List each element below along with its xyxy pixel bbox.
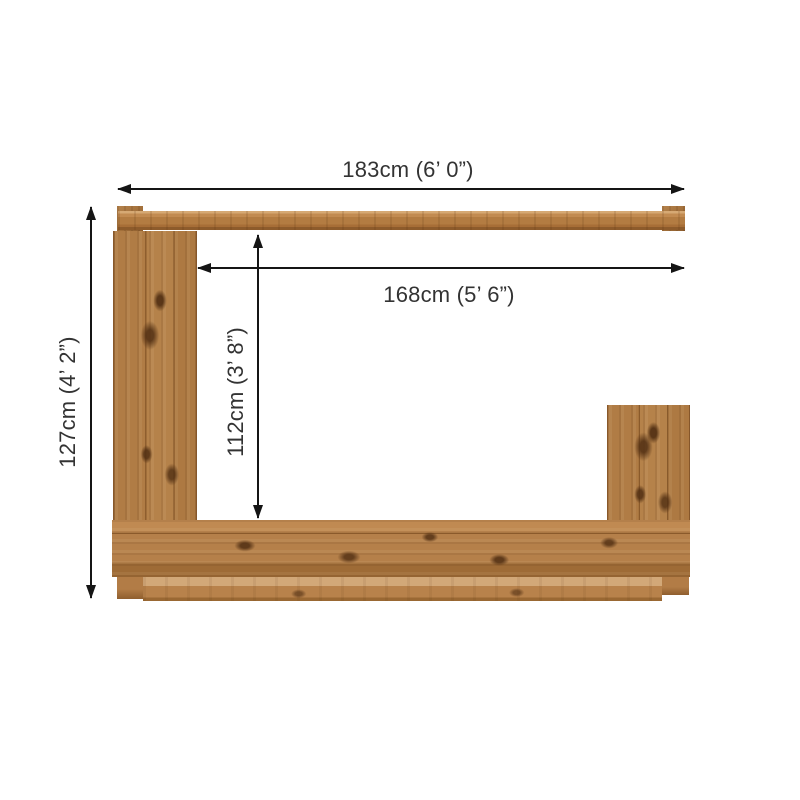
inner-depth-label: 112cm (3’ 8”) [223,327,249,457]
total-depth-label: 127cm (4’ 2”) [55,336,81,467]
arrowhead-right-icon [671,263,685,273]
inner-width-arrow [198,267,684,269]
arrowhead-up-icon [253,234,263,248]
arrowhead-down-icon [86,585,96,599]
bottom-base [143,577,662,601]
arrowhead-right-icon [671,184,685,194]
arrowhead-left-icon [117,184,131,194]
total-width-arrow [118,188,684,190]
inner-depth-arrow [257,235,259,518]
inner-width-label: 168cm (5’ 6”) [383,282,514,308]
arrowhead-up-icon [86,206,96,220]
top-rail [118,211,685,230]
total-depth-arrow [90,207,92,598]
dimension-diagram: 183cm (6’ 0”) 168cm (5’ 6”) 127cm (4’ 2”… [0,0,800,800]
left-post [113,231,197,521]
bottom-base-right-block [662,577,689,595]
bottom-base-left-block [117,577,143,599]
bottom-counter [112,520,690,577]
arrowhead-down-icon [253,505,263,519]
right-post [607,405,690,521]
arrowhead-left-icon [197,263,211,273]
total-width-label: 183cm (6’ 0”) [342,157,473,183]
